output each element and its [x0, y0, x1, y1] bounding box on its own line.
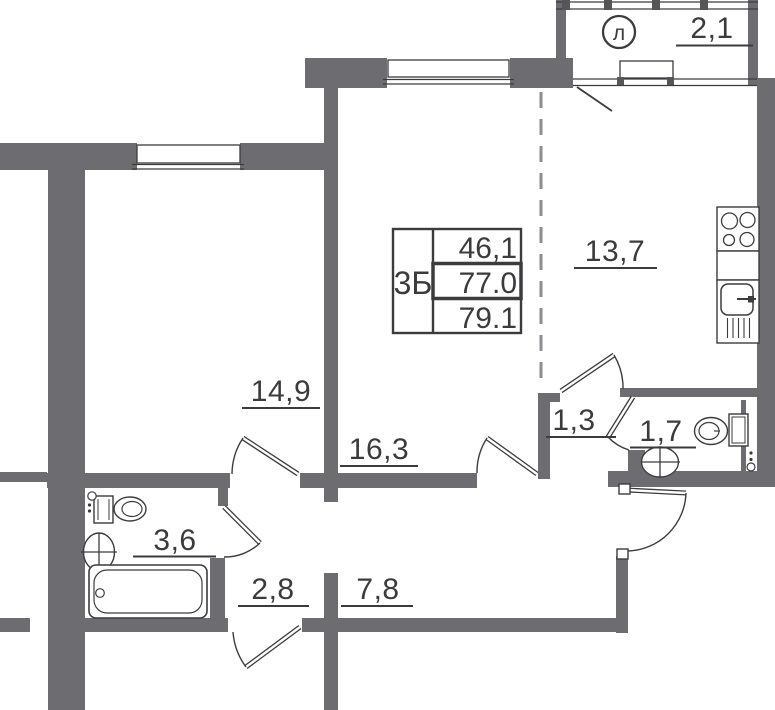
glazing-post: [652, 0, 660, 10]
glazing-post: [562, 0, 570, 10]
wall: [338, 618, 628, 632]
label-bathroom: 3,6: [153, 524, 196, 557]
door-entry: [617, 484, 686, 559]
toilet-wc: [695, 414, 749, 446]
door-loggia-swing: [577, 87, 612, 111]
window-kitchen-loggia: [573, 61, 757, 86]
wall: [620, 388, 775, 397]
stove: [717, 207, 759, 251]
wall: [748, 0, 758, 86]
wall: [0, 143, 137, 170]
wall: [510, 58, 573, 88]
apartment-type: 3Б: [394, 265, 433, 301]
kitchen-counter: [717, 251, 759, 280]
area-total: 79.1: [459, 302, 517, 335]
wall: [218, 488, 228, 506]
door-kitchen: [561, 355, 623, 391]
windows: [132, 60, 757, 169]
floor-plan-svg: 3Б 46,1 77.0 79.1 л 2,1 13,7 14,9 16,3 1…: [0, 0, 775, 710]
wall: [300, 473, 477, 488]
sink-wc: [641, 447, 680, 477]
toilet-bathroom: [94, 496, 146, 523]
wall: [305, 58, 387, 88]
wall: [240, 143, 338, 170]
label-loggia: 2,1: [690, 12, 733, 45]
label-living: 16,3: [349, 433, 409, 466]
loggia-letter: л: [613, 22, 625, 45]
kitchen-sink: [717, 280, 759, 343]
area-apartment: 77.0: [459, 267, 517, 300]
door-wc: [608, 397, 633, 450]
loggia-glazing: [556, 0, 758, 10]
glazing-post: [700, 0, 708, 10]
apartment-info-table: 3Б 46,1 77.0 79.1: [393, 229, 521, 335]
wall: [324, 573, 338, 710]
wall: [616, 556, 628, 633]
glazing-post: [604, 0, 612, 10]
label-kitchen: 13,7: [585, 235, 645, 268]
label-hallway: 7,8: [356, 573, 399, 606]
label-corridor-small: 1,3: [552, 404, 595, 437]
label-bedroom: 14,9: [251, 375, 311, 408]
window-jamb: [667, 77, 674, 85]
loggia-symbol: л: [603, 16, 635, 48]
wall: [47, 473, 230, 488]
wall: [0, 472, 47, 482]
bathtub: [89, 565, 207, 618]
label-wc: 1,7: [639, 415, 682, 448]
door-jamb: [617, 549, 628, 559]
window-jamb: [617, 77, 624, 85]
wall: [324, 62, 338, 502]
door-hall-lower: [233, 627, 300, 667]
floor-plan: 3Б 46,1 77.0 79.1 л 2,1 13,7 14,9 16,3 1…: [0, 0, 775, 710]
door-bathroom: [224, 507, 260, 557]
area-living-total: 46,1: [459, 232, 517, 265]
wall: [538, 393, 560, 402]
window-bedroom: [132, 145, 244, 169]
door-jamb: [619, 484, 630, 494]
faucet-handle: [748, 296, 754, 303]
window-living: [383, 60, 514, 84]
door-living: [477, 438, 537, 474]
wall: [210, 558, 225, 618]
label-hall: 2,8: [251, 573, 294, 606]
wall: [757, 78, 775, 475]
wall: [0, 618, 30, 632]
riser-symbols-wc: [747, 451, 755, 471]
wall: [48, 618, 228, 632]
door-bedroom: [232, 438, 298, 474]
